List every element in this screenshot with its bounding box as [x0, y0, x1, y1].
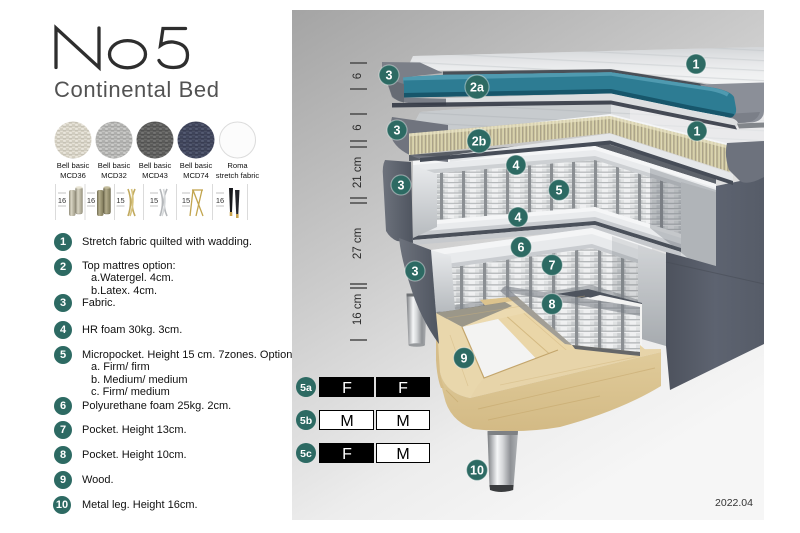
svg-text:7: 7	[549, 259, 556, 273]
svg-text:10: 10	[470, 464, 484, 478]
svg-text:16: 16	[58, 196, 66, 205]
svg-text:21 cm: 21 cm	[352, 157, 364, 188]
svg-text:2b: 2b	[472, 135, 487, 149]
svg-text:1: 1	[694, 125, 701, 139]
svg-text:M: M	[396, 446, 409, 463]
svg-text:16 cm: 16 cm	[352, 294, 364, 325]
svg-text:1: 1	[693, 58, 700, 72]
svg-text:2a: 2a	[470, 81, 485, 95]
svg-text:4: 4	[513, 159, 520, 173]
svg-text:6: 6	[518, 241, 525, 255]
svg-text:F: F	[342, 380, 352, 397]
svg-text:16: 16	[216, 196, 224, 205]
svg-text:5a: 5a	[300, 382, 312, 394]
svg-text:F: F	[398, 380, 408, 397]
svg-text:3: 3	[394, 124, 401, 138]
svg-text:4: 4	[515, 211, 522, 225]
svg-text:15: 15	[150, 196, 158, 205]
svg-text:6: 6	[352, 73, 364, 79]
svg-text:9: 9	[461, 352, 468, 366]
svg-text:8: 8	[549, 298, 556, 312]
svg-text:5c: 5c	[300, 448, 312, 460]
svg-text:M: M	[340, 413, 353, 430]
svg-text:15: 15	[182, 196, 190, 205]
svg-text:2022.04: 2022.04	[715, 497, 753, 509]
svg-text:3: 3	[386, 69, 393, 83]
svg-text:27 cm: 27 cm	[352, 228, 364, 259]
svg-text:15: 15	[116, 196, 124, 205]
svg-text:F: F	[342, 446, 352, 463]
svg-text:16: 16	[87, 196, 95, 205]
svg-text:5b: 5b	[300, 415, 312, 427]
svg-text:6: 6	[352, 124, 364, 130]
svg-text:3: 3	[398, 179, 405, 193]
svg-text:5: 5	[556, 184, 563, 198]
svg-text:3: 3	[412, 265, 419, 279]
svg-text:M: M	[396, 413, 409, 430]
